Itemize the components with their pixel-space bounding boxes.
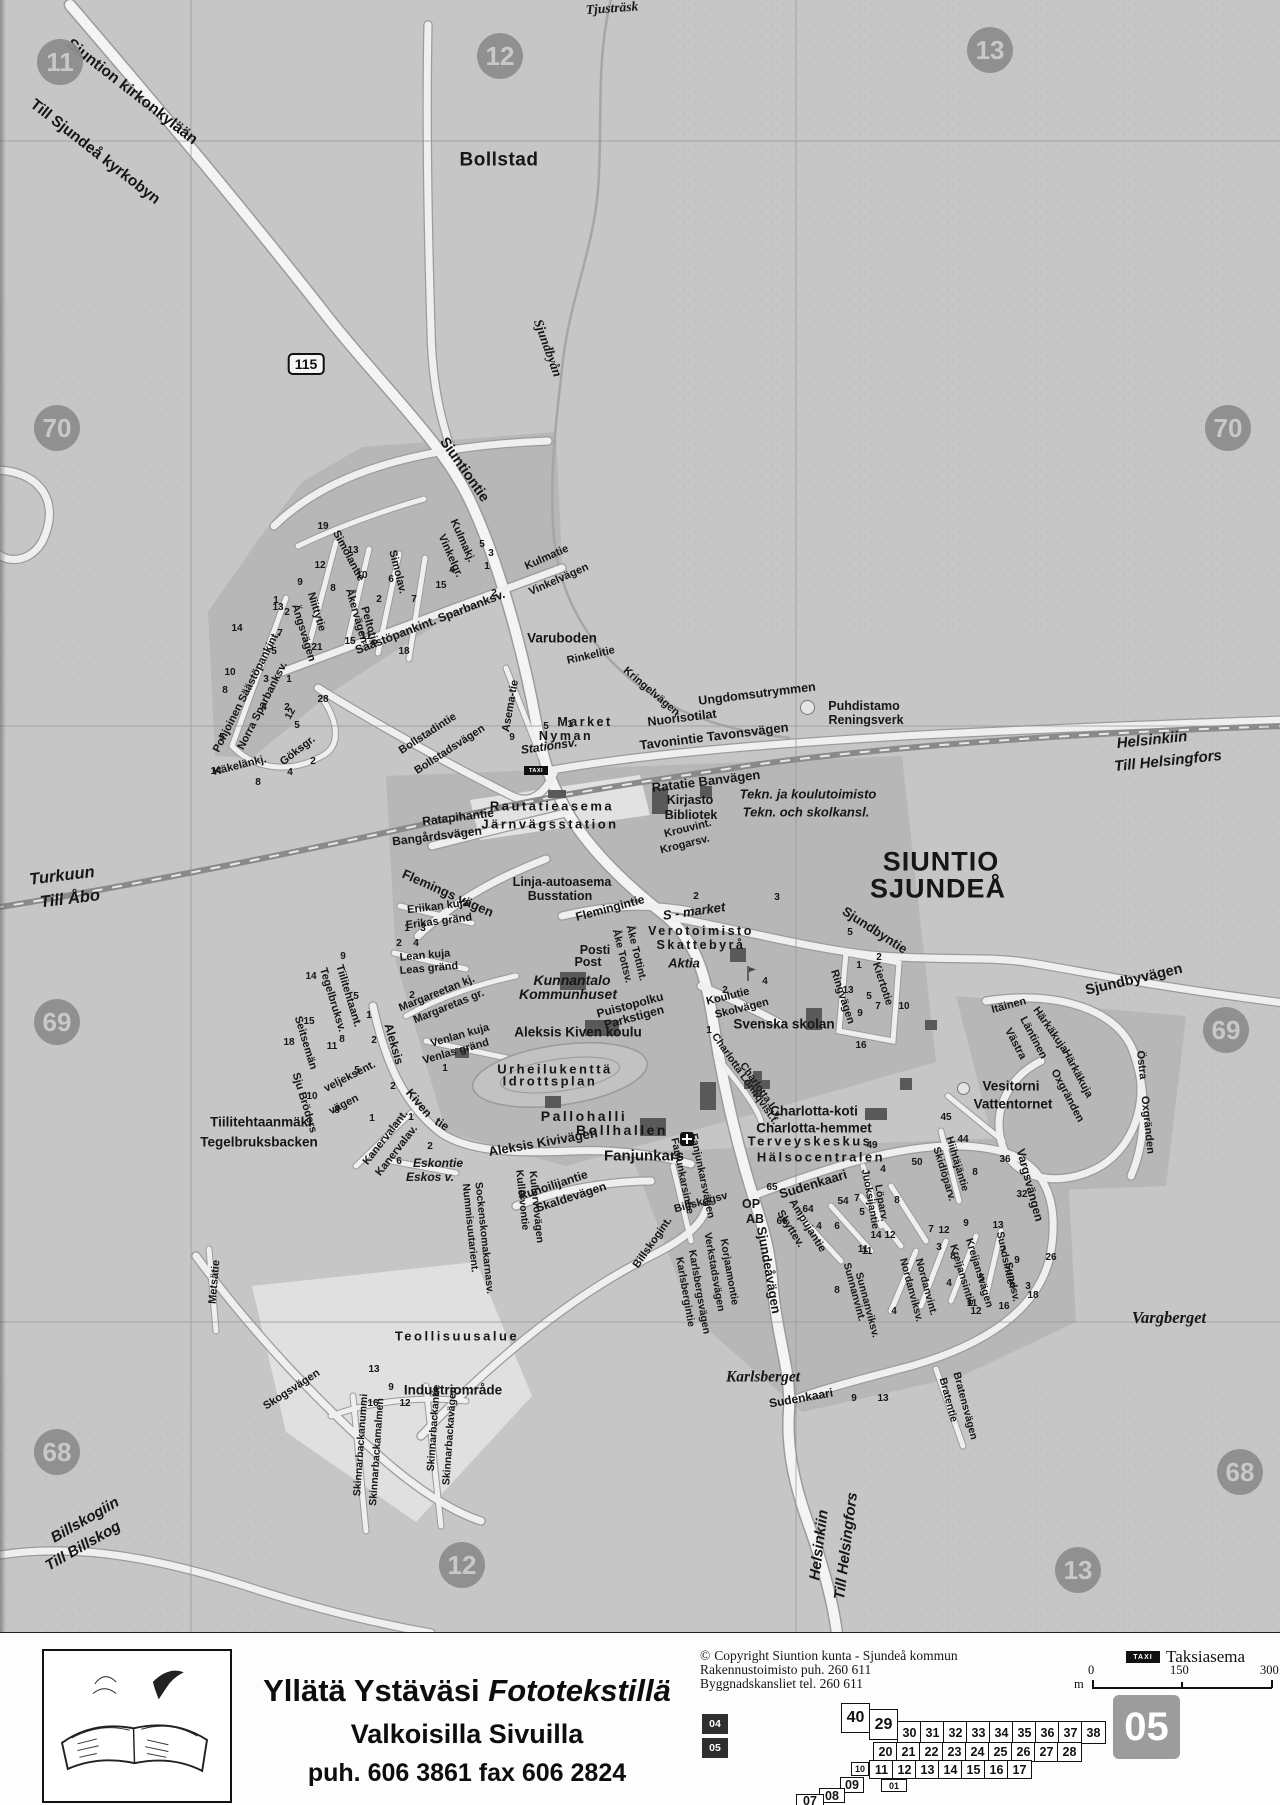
advertisement: Yllätä Ystäväsi Fototekstillä Valkoisill…: [232, 1633, 702, 1805]
taxi-logo-icon: TAXI: [1126, 1651, 1160, 1663]
index-cell-40: 40: [841, 1703, 870, 1733]
map-canvas: Siuntion kirkonkyläänTill Sjundeå kyrkob…: [0, 0, 1280, 1632]
treatment-plant-icon: [800, 700, 815, 715]
index-cell-11: 11: [869, 1760, 894, 1779]
index-cell-26: 26: [1011, 1742, 1036, 1762]
index-cell-25: 25: [988, 1742, 1013, 1762]
open-book-illustration: [44, 1651, 225, 1796]
grid-sheet-circle: 70: [1205, 405, 1251, 451]
index-cell-17: 17: [1007, 1760, 1032, 1779]
index-cell-04: 04: [702, 1714, 728, 1734]
index-cell-35: 35: [1012, 1721, 1037, 1744]
index-cell-31: 31: [920, 1721, 945, 1744]
index-cell-07: 07: [796, 1794, 824, 1805]
grid-sheet-circle: 13: [967, 27, 1013, 73]
index-cell-37: 37: [1058, 1721, 1083, 1744]
index-cell-21: 21: [896, 1742, 921, 1762]
page-number-badge: 05: [1113, 1695, 1180, 1759]
route-115-badge: 115: [288, 353, 325, 375]
ad-illustration-frame: [42, 1649, 232, 1803]
grid-sheet-circle: 12: [477, 33, 523, 79]
grid-sheet-circle: 11: [37, 39, 83, 85]
ad-line-1: Yllätä Ystäväsi Fototekstillä: [232, 1673, 702, 1709]
scanned-map-page: Siuntion kirkonkyläänTill Sjundeå kyrkob…: [0, 0, 1280, 1805]
index-cell-27: 27: [1034, 1742, 1059, 1762]
grid-sheet-circle: 69: [1203, 1007, 1249, 1053]
page-footer-strip: Yllätä Ystäväsi Fototekstillä Valkoisill…: [0, 1632, 1280, 1805]
index-cell-13: 13: [915, 1760, 940, 1779]
grid-sheet-circle: 12: [439, 1542, 485, 1588]
index-cell-14: 14: [938, 1760, 963, 1779]
index-cell-38: 38: [1081, 1721, 1106, 1744]
ad-line-2: Valkoisilla Sivuilla: [232, 1719, 702, 1750]
index-cell-22: 22: [919, 1742, 944, 1762]
taxi-station-icon: TAXI: [524, 766, 548, 775]
index-cell-10: 10: [851, 1762, 869, 1776]
index-cell-01: 01: [881, 1779, 907, 1792]
ad-line-3: puh. 606 3861 fax 606 2824: [232, 1759, 702, 1788]
index-cell-12: 12: [892, 1760, 917, 1779]
copyright-block: ©Copyright Siuntion kunta - Sjundeå komm…: [700, 1649, 1030, 1691]
copyright-icon: ©: [700, 1649, 710, 1663]
index-cell-30: 30: [897, 1721, 922, 1744]
grid-sheet-circle: 70: [34, 405, 80, 451]
fanjunkars-cross-icon: [680, 1132, 694, 1151]
grid-sheet-circle: 68: [1217, 1449, 1263, 1495]
grid-sheet-circle: 68: [34, 1429, 80, 1475]
index-cell-34: 34: [989, 1721, 1014, 1744]
grid-sheet-circle: 13: [1055, 1547, 1101, 1593]
grid-circles-layer: 1112137070696968681213: [0, 0, 1280, 1632]
index-cell-24: 24: [965, 1742, 990, 1762]
index-cell-33: 33: [966, 1721, 991, 1744]
index-cell-36: 36: [1035, 1721, 1060, 1744]
grid-sheet-circle: 69: [34, 999, 80, 1045]
index-cell-05: 05: [702, 1738, 728, 1758]
index-cell-23: 23: [942, 1742, 967, 1762]
index-cell-28: 28: [1057, 1742, 1082, 1762]
index-cell-15: 15: [961, 1760, 986, 1779]
index-cell-29: 29: [869, 1709, 898, 1740]
index-cell-16: 16: [984, 1760, 1009, 1779]
water-tower-icon: [957, 1082, 970, 1095]
flag-icon: [746, 966, 757, 986]
index-cell-20: 20: [873, 1742, 898, 1762]
index-cell-32: 32: [943, 1721, 968, 1744]
